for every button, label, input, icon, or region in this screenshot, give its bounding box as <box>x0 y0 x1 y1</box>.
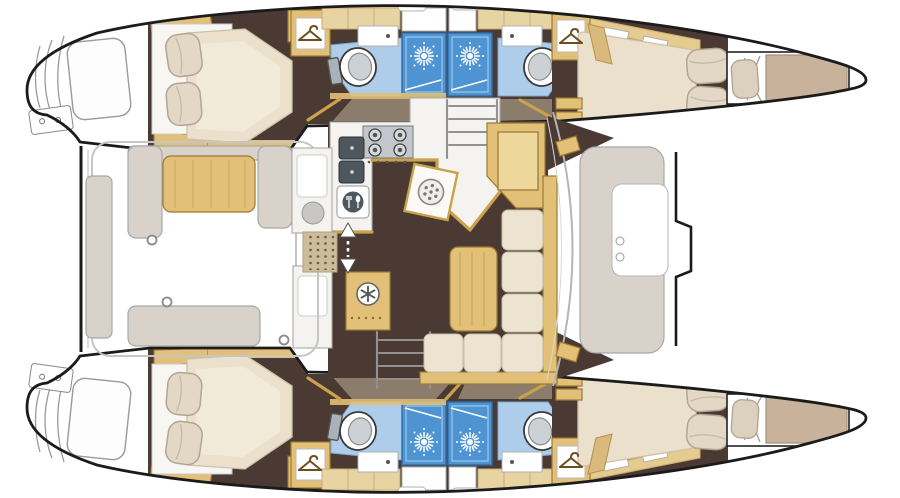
faucet-dot <box>510 34 514 38</box>
cockpit-dinette <box>128 146 292 238</box>
catamaran-floor-plan: catamaran-interior-floor-plan <box>0 0 900 498</box>
round-sink <box>302 202 324 224</box>
oven-icon <box>337 186 369 218</box>
forward-seat-notch <box>612 184 668 276</box>
pillow <box>686 48 730 85</box>
door-mat <box>303 232 337 272</box>
cockpit-bench <box>128 306 260 346</box>
pillow <box>164 32 204 78</box>
pillow <box>686 86 730 123</box>
floor-plan-canvas: catamaran-interior-floor-plan <box>0 0 900 498</box>
snowflake-icon <box>357 283 379 305</box>
forward-crossbeam <box>676 152 691 346</box>
pillow <box>165 82 203 127</box>
cup-holder <box>616 237 624 245</box>
appliance-panel <box>404 164 457 220</box>
sofa-front-trim <box>420 372 557 384</box>
locker <box>449 8 476 31</box>
salon-table <box>450 247 497 331</box>
cockpit-table <box>163 156 255 212</box>
washbasin-counter <box>502 26 542 46</box>
forward-cockpit <box>556 136 691 362</box>
faucet-dot <box>386 34 390 38</box>
salon-cabinet <box>293 266 332 348</box>
cup-holder <box>616 253 624 261</box>
pillow <box>731 59 760 99</box>
sofa-back-trim <box>543 176 557 382</box>
sunburst-shower-icon <box>456 42 484 70</box>
wet-bar <box>292 148 332 233</box>
fridge-cabinet <box>346 272 390 330</box>
sunburst-shower-icon <box>410 42 438 70</box>
aft-bench <box>86 176 112 338</box>
washbasin-counter <box>358 26 398 46</box>
step <box>556 98 582 109</box>
